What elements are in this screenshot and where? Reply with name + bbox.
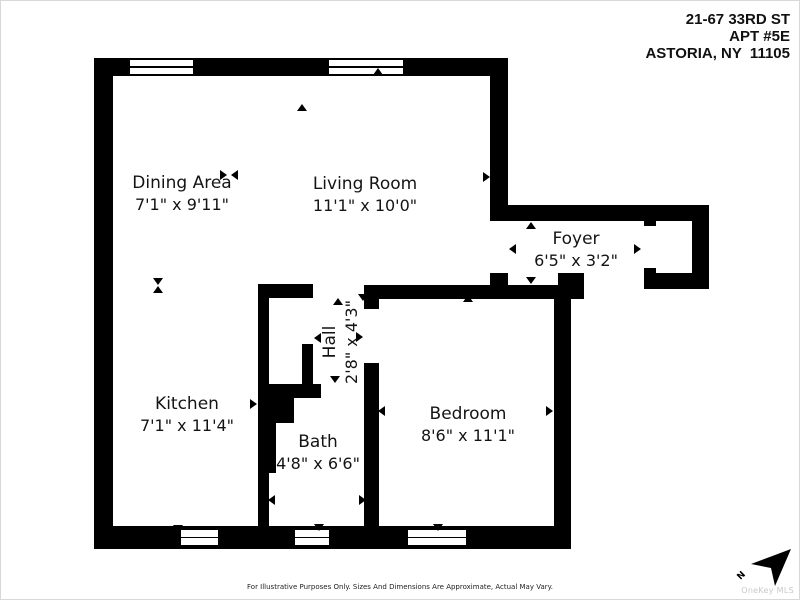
room-name: Kitchen xyxy=(140,394,234,415)
wall-foyer-top xyxy=(490,205,709,221)
dimension-arrow xyxy=(250,399,257,409)
dimension-arrow xyxy=(463,295,473,302)
room-dims: 7'1" x 9'11" xyxy=(132,194,231,215)
wall-bedroom-left xyxy=(364,363,379,549)
room-name: Living Room xyxy=(313,174,417,195)
dimension-arrow xyxy=(104,396,111,406)
wall-left-outer xyxy=(94,58,113,549)
address-line: ASTORIA, NY 11105 xyxy=(645,45,790,62)
room-dims: 4'8" x 6'6" xyxy=(276,453,360,474)
dimension-arrow xyxy=(526,222,536,229)
room-label-bath: Bath 4'8" x 6'6" xyxy=(276,432,360,474)
dimension-arrow xyxy=(483,172,490,182)
room-label-foyer: Foyer 6'5" x 3'2" xyxy=(534,229,618,271)
dimension-arrow xyxy=(104,169,111,179)
dimension-arrow xyxy=(153,286,163,293)
dimension-arrow xyxy=(634,244,641,254)
disclaimer-text: For Illustrative Purposes Only. Sizes An… xyxy=(247,583,553,591)
room-dims: 11'1" x 10'0" xyxy=(313,195,417,216)
wall-bedroom-top xyxy=(364,285,584,299)
wall-bath-left-upper xyxy=(258,398,276,473)
room-label-kitchen: Kitchen 7'1" x 11'4" xyxy=(140,394,234,436)
window-bath xyxy=(290,529,334,546)
room-name: Hall xyxy=(320,300,341,384)
wall-entry-corner-block xyxy=(558,273,584,285)
room-name: Dining Area xyxy=(132,173,231,194)
room-dims: 7'1" x 11'4" xyxy=(140,415,234,436)
address-line: APT #5E xyxy=(645,28,790,45)
wall-living-right xyxy=(490,58,508,221)
watermark-logo: OneKey MLS xyxy=(741,586,794,595)
room-name: Foyer xyxy=(534,229,618,250)
dimension-arrow xyxy=(268,495,275,505)
dimension-arrow xyxy=(526,277,536,284)
dimension-arrow xyxy=(173,525,183,532)
floor-plan-canvas: Dining Area 7'1" x 9'11" Living Room 11'… xyxy=(0,0,800,600)
dimension-arrow xyxy=(231,170,238,180)
room-name: Bath xyxy=(276,432,360,453)
window-living xyxy=(324,59,408,75)
room-label-bedroom: Bedroom 8'6" x 11'1" xyxy=(421,404,515,446)
dimension-arrow xyxy=(359,495,366,505)
window-kitchen xyxy=(176,529,223,546)
north-arrow-icon xyxy=(745,546,795,588)
window-bedroom xyxy=(403,529,471,546)
room-dims: 6'5" x 3'2" xyxy=(534,250,618,271)
address-line: 21-67 33RD ST xyxy=(645,11,790,28)
dimension-arrow xyxy=(433,524,443,531)
room-label-dining: Dining Area 7'1" x 9'11" xyxy=(132,173,231,215)
wall-closet-left xyxy=(258,284,269,398)
dimension-arrow xyxy=(509,244,516,254)
wall-bedroom-right xyxy=(554,285,571,549)
room-name: Bedroom xyxy=(421,404,515,425)
dimension-arrow xyxy=(546,406,553,416)
room-label-living: Living Room 11'1" x 10'0" xyxy=(313,174,417,216)
room-dims: 2'8" x 4'3" xyxy=(341,300,362,384)
dimension-arrow xyxy=(297,104,307,111)
room-label-hall: Hall 2'8" x 4'3" xyxy=(320,300,362,384)
jamb-vestibule-top xyxy=(644,221,656,226)
wall-closet-bottom xyxy=(258,384,321,398)
jamb-living-foyer xyxy=(490,273,508,285)
dimension-arrow xyxy=(373,68,383,75)
wall-vestibule-bottom xyxy=(644,273,709,289)
dimension-arrow xyxy=(153,278,163,285)
window-dining xyxy=(125,59,198,75)
dimension-arrow xyxy=(378,406,385,416)
address-block: 21-67 33RD ST APT #5E ASTORIA, NY 11105 xyxy=(645,11,790,62)
room-dims: 8'6" x 11'1" xyxy=(421,425,515,446)
wall-bath-chase xyxy=(276,398,294,423)
dimension-arrow xyxy=(314,524,324,531)
jamb-vestibule-bottom xyxy=(644,268,656,273)
